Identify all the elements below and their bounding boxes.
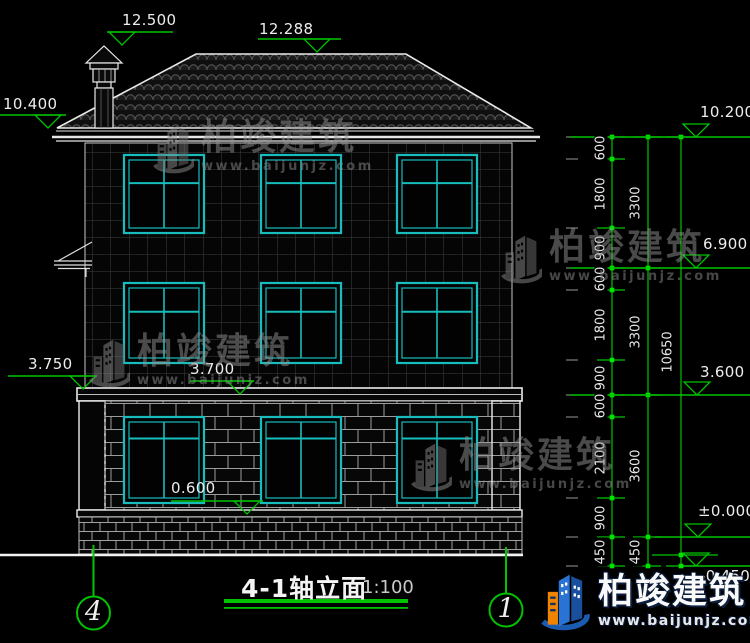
watermark: 柏竣建筑 www.baijunjz.com <box>152 120 374 176</box>
window <box>124 417 204 503</box>
brand-logo: 柏竣建筑 www.baijunjz.com <box>540 571 750 633</box>
sill-band <box>77 510 522 517</box>
brand-name: 柏竣建筑 <box>598 575 750 610</box>
plinth <box>79 517 522 554</box>
elevation-marker-triangle <box>685 524 711 537</box>
dim-dot <box>610 535 615 540</box>
dim-dot <box>679 564 684 569</box>
watermark-logo-icon <box>88 334 130 390</box>
watermark-name: 柏竣建筑 <box>137 334 310 370</box>
dim-dot <box>610 415 615 420</box>
dim-dot <box>610 288 615 293</box>
watermark-url: www.baijunjz.com <box>459 477 632 492</box>
window <box>397 283 477 363</box>
dim-dot <box>610 157 615 162</box>
dim-dot <box>610 496 615 501</box>
watermark: 柏竣建筑 www.baijunjz.com <box>500 230 722 286</box>
watermark-url: www.baijunjz.com <box>137 373 310 388</box>
watermark-url: www.baijunjz.com <box>201 159 374 174</box>
watermark-url: www.baijunjz.com <box>549 269 722 284</box>
dim-dot <box>610 358 615 363</box>
title-underline <box>224 599 408 609</box>
dim-dot <box>610 564 615 569</box>
watermark: 柏竣建筑 www.baijunjz.com <box>410 438 632 494</box>
watermark-name: 柏竣建筑 <box>459 438 632 474</box>
watermark-name: 柏竣建筑 <box>201 120 374 156</box>
elevation-sheet: 4-1轴立面 1:100 4 1 60018009006001800900600… <box>0 0 750 643</box>
elevation-marker-triangle <box>35 115 61 128</box>
axis-markers <box>77 545 523 630</box>
watermark: 柏竣建筑 www.baijunjz.com <box>88 334 310 390</box>
elevation-marker-triangle <box>304 39 330 52</box>
watermark-name: 柏竣建筑 <box>549 230 722 266</box>
brand-url: www.baijunjz.com <box>598 613 750 629</box>
dim-dot <box>646 564 651 569</box>
elevation-marker-triangle <box>684 382 710 395</box>
elevation-marker-triangle <box>683 124 709 137</box>
dim-dot <box>646 535 651 540</box>
watermark-logo-icon <box>152 120 194 176</box>
brand-logo-icon <box>540 571 590 633</box>
elevation-marker-triangle <box>109 32 135 45</box>
elevation-drawing <box>0 0 750 643</box>
watermark-logo-icon <box>500 230 542 286</box>
watermark-logo-icon <box>410 438 452 494</box>
window <box>397 155 477 233</box>
window <box>261 417 341 503</box>
